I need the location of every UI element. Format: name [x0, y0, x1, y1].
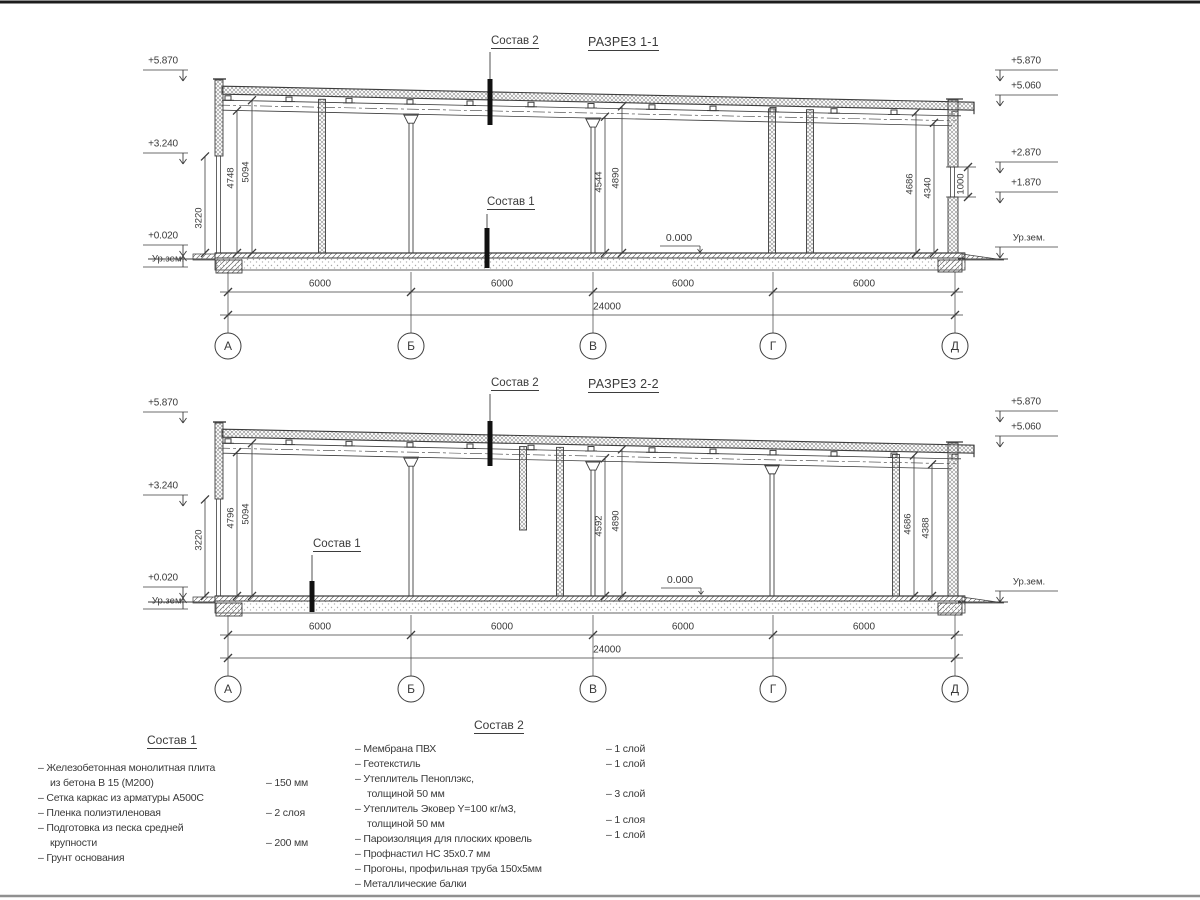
axis-bubble-label: В — [589, 339, 597, 353]
legend-row: – Пленка полиэтиленовая — [38, 807, 161, 819]
level-mark-value: +3.240 — [148, 139, 178, 150]
legend-row: крупности — [50, 837, 97, 849]
legend-row-value: – 1 слой — [606, 829, 645, 841]
section1-title: РАЗРЕЗ 1-1 — [588, 35, 659, 51]
legend-row-value: – 150 мм — [266, 777, 308, 789]
vertical-dim: 5094 — [241, 161, 252, 182]
vertical-dim: 4388 — [921, 517, 932, 538]
section1-cut2-label: Состав 2 — [491, 35, 539, 49]
span-dim: 6000 — [309, 622, 331, 633]
level-mark-value: +1.870 — [1011, 178, 1041, 189]
span-dim: 6000 — [672, 622, 694, 633]
ground-level-label: Ур.зем. — [152, 254, 184, 265]
axis-bubble-label: Б — [407, 339, 415, 353]
legend-row: – Грунт основания — [38, 852, 124, 864]
span-dim: 6000 — [853, 622, 875, 633]
total-dim: 24000 — [593, 302, 621, 313]
level-mark-value: +0.020 — [148, 573, 178, 584]
axis-bubble-label: А — [224, 682, 232, 696]
axis-bubble-label: Г — [770, 682, 777, 696]
axis-bubble-label: Г — [770, 339, 777, 353]
section2-cut1-label: Состав 1 — [313, 538, 361, 552]
axis-bubble-label: Д — [951, 682, 959, 696]
legend-row: – Подготовка из песка средней — [38, 822, 183, 834]
legend-row-value: – 1 слой — [606, 758, 645, 770]
level-mark-value: +5.060 — [1011, 81, 1041, 92]
vertical-dim: 3220 — [194, 207, 205, 228]
legend-row: – Прогоны, профильная труба 150х5мм — [355, 863, 542, 875]
vertical-dim: 4686 — [905, 173, 916, 194]
legend-row: – Металлические балки — [355, 878, 467, 890]
legend-row: – Профнастил НС 35х0.7 мм — [355, 848, 490, 860]
ground-level-label: Ур.зем. — [1013, 233, 1045, 244]
legend-row-value: – 1 слой — [606, 743, 645, 755]
legend-row: толщиной 50 мм — [367, 788, 445, 800]
legend-row: из бетона В 15 (М200) — [50, 777, 154, 789]
legend-row: – Геотекстиль — [355, 758, 420, 770]
vertical-dim: 4890 — [611, 167, 622, 188]
axis-bubble-label: Б — [407, 682, 415, 696]
legend1-title: Состав 1 — [147, 733, 197, 749]
vertical-dim: 3220 — [194, 529, 205, 550]
legend-row: – Утеплитель Пеноплэкс, — [355, 773, 474, 785]
axis-bubble-label: Д — [951, 339, 959, 353]
total-dim: 24000 — [593, 645, 621, 656]
legend-row-value: – 3 слой — [606, 788, 645, 800]
vertical-dim: 4686 — [903, 513, 914, 534]
legend-row: – Пароизоляция для плоских кровель — [355, 833, 532, 845]
legend-row: – Сетка каркас из арматуры А500С — [38, 792, 204, 804]
level-mark-value: +5.870 — [1011, 397, 1041, 408]
ground-level-label: Ур.зем. — [152, 596, 184, 607]
level-mark-value: +5.060 — [1011, 422, 1041, 433]
legend-row: – Утеплитель Эковер Y=100 кг/м3, — [355, 803, 516, 815]
span-dim: 6000 — [853, 279, 875, 290]
legend-row: – Железобетонная монолитная плита — [38, 762, 215, 774]
span-dim: 6000 — [672, 279, 694, 290]
vertical-dim: 1000 — [956, 173, 967, 194]
section-2-linework — [143, 394, 1058, 702]
legend-row-value: – 2 слоя — [266, 807, 305, 819]
legend2-title: Состав 2 — [474, 718, 524, 734]
section2-title: РАЗРЕЗ 2-2 — [588, 377, 659, 393]
axis-bubble-label: А — [224, 339, 232, 353]
axis-bubble-label: В — [589, 682, 597, 696]
vertical-dim: 4890 — [611, 510, 622, 531]
ground-level-label: Ур.зем. — [1013, 577, 1045, 588]
level-mark-value: +3.240 — [148, 481, 178, 492]
vertical-dim: 5094 — [241, 503, 252, 524]
legend-row-value: – 1 слоя — [606, 814, 645, 826]
legend-row: толщиной 50 мм — [367, 818, 445, 830]
span-dim: 6000 — [309, 279, 331, 290]
drawing-sheet: РАЗРЕЗ 1-1 Состав 2 Состав 1 0.000 +5.87… — [0, 0, 1200, 900]
span-dim: 6000 — [491, 622, 513, 633]
section2-zero-level: 0.000 — [667, 574, 693, 586]
span-dim: 6000 — [491, 279, 513, 290]
section1-cut1-label: Состав 1 — [487, 196, 535, 210]
legend-row-value: – 200 мм — [266, 837, 308, 849]
level-mark-value: +5.870 — [148, 398, 178, 409]
vertical-dim: 4748 — [226, 167, 237, 188]
vertical-dim: 4544 — [594, 171, 605, 192]
vertical-dim: 4340 — [923, 177, 934, 198]
level-mark-value: +5.870 — [148, 56, 178, 67]
level-mark-value: +5.870 — [1011, 56, 1041, 67]
legend-row: – Мембрана ПВХ — [355, 743, 436, 755]
vertical-dim: 4796 — [226, 507, 237, 528]
section1-zero-level: 0.000 — [666, 232, 692, 244]
section-1-linework — [143, 52, 1058, 359]
vertical-dim: 4592 — [594, 515, 605, 536]
section2-cut2-label: Состав 2 — [491, 377, 539, 391]
level-mark-value: +0.020 — [148, 231, 178, 242]
level-mark-value: +2.870 — [1011, 148, 1041, 159]
